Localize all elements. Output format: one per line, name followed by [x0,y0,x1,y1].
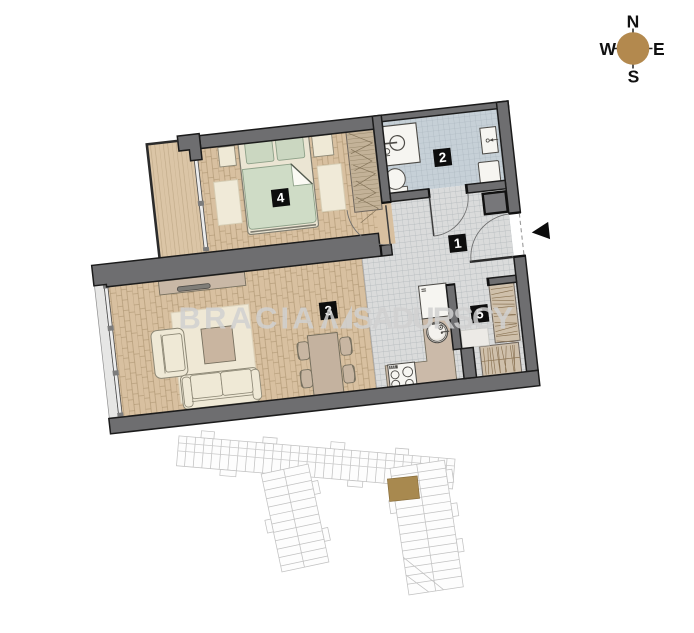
svg-text:W: W [599,39,616,59]
svg-text:SADURSCY: SADURSCY [353,301,514,336]
svg-text:N: N [627,12,640,32]
svg-text:S: S [628,67,640,87]
svg-text:BRACIA: BRACIA [179,301,318,336]
svg-text:E: E [653,39,665,59]
